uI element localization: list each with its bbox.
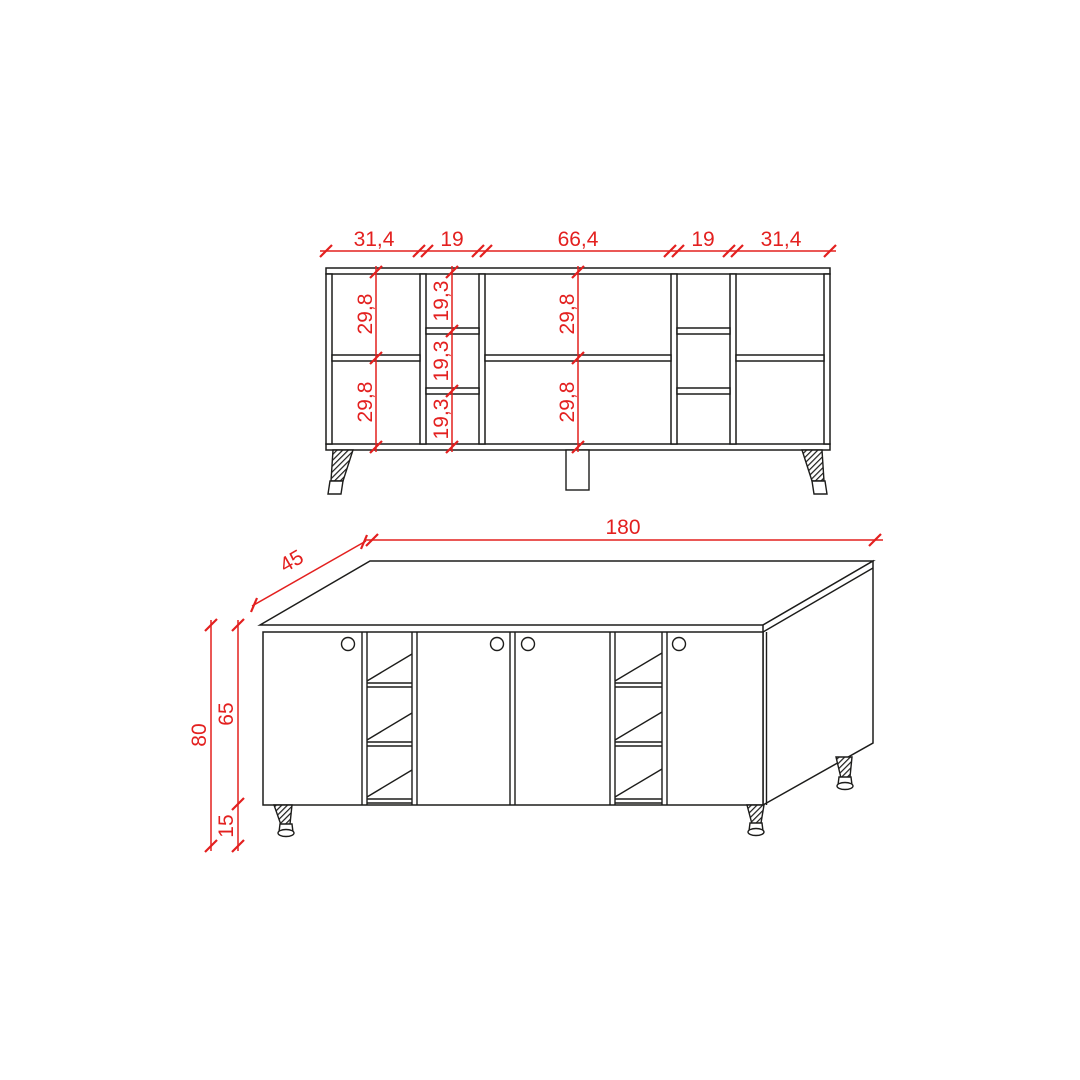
sideboard-dimension-drawing: 31,4 19 66,4 19 31,4 29,8 29,8 19,3 19,3… <box>0 0 1080 1080</box>
width-dimension-3d: 180 <box>364 516 883 546</box>
dim-width-4: 19 <box>691 228 714 251</box>
cabinet-body-3d <box>260 561 873 805</box>
right-leg-foot <box>812 481 827 494</box>
front-left-leg <box>274 805 292 825</box>
divider-1 <box>420 274 426 444</box>
dim-col3-bottom: 29,8 <box>556 382 579 423</box>
dim-width-3: 66,4 <box>558 228 599 251</box>
front-right-foot-base <box>748 829 764 836</box>
dim-width-1: 31,4 <box>354 228 395 251</box>
height-dimension-col2: 19,3 19,3 19,3 <box>430 266 458 453</box>
left-leg-foot <box>328 481 343 494</box>
col4-shelf-lower <box>677 388 730 394</box>
dim-col2-3: 19,3 <box>430 399 453 440</box>
dim-height-65: 65 <box>215 702 238 725</box>
dim-depth-45: 45 <box>276 546 308 578</box>
dim-height-15: 15 <box>215 814 238 837</box>
col5-shelf <box>736 355 824 361</box>
col4-shelf-upper <box>677 328 730 334</box>
dim-col2-2: 19,3 <box>430 341 453 382</box>
dim-width-2: 19 <box>440 228 463 251</box>
front-right-leg <box>747 805 764 824</box>
divider-3 <box>671 274 677 444</box>
front-elevation-view: 31,4 19 66,4 19 31,4 29,8 29,8 19,3 19,3… <box>320 228 836 494</box>
divider-2 <box>479 274 485 444</box>
right-leg <box>802 450 824 481</box>
dim-col1-top: 29,8 <box>354 294 377 335</box>
tick <box>251 598 257 612</box>
center-leg <box>566 450 589 490</box>
dim-col3-top: 29,8 <box>556 294 579 335</box>
technical-drawing-page: 31,4 19 66,4 19 31,4 29,8 29,8 19,3 19,3… <box>0 0 1080 1080</box>
back-right-foot-base <box>837 783 853 790</box>
divider-4 <box>730 274 736 444</box>
body-leg-height-dimension: 65 15 <box>215 619 244 852</box>
dim-width-180: 180 <box>605 516 640 539</box>
right-side-panel <box>824 274 830 444</box>
dim-height-80: 80 <box>188 723 211 746</box>
width-dimension-chain: 31,4 19 66,4 19 31,4 <box>320 228 836 257</box>
dim-col1-bottom: 29,8 <box>354 382 377 423</box>
front-face <box>263 632 763 805</box>
perspective-view: 180 45 80 65 15 <box>188 516 883 852</box>
dim-col2-1: 19,3 <box>430 281 453 322</box>
front-view-legs <box>328 450 827 494</box>
left-side-panel <box>326 274 332 444</box>
total-height-dimension: 80 <box>188 619 217 852</box>
back-right-leg <box>836 757 852 778</box>
tick <box>361 535 367 549</box>
left-leg <box>331 450 353 481</box>
dim-width-5: 31,4 <box>761 228 802 251</box>
front-left-foot-base <box>278 830 294 837</box>
